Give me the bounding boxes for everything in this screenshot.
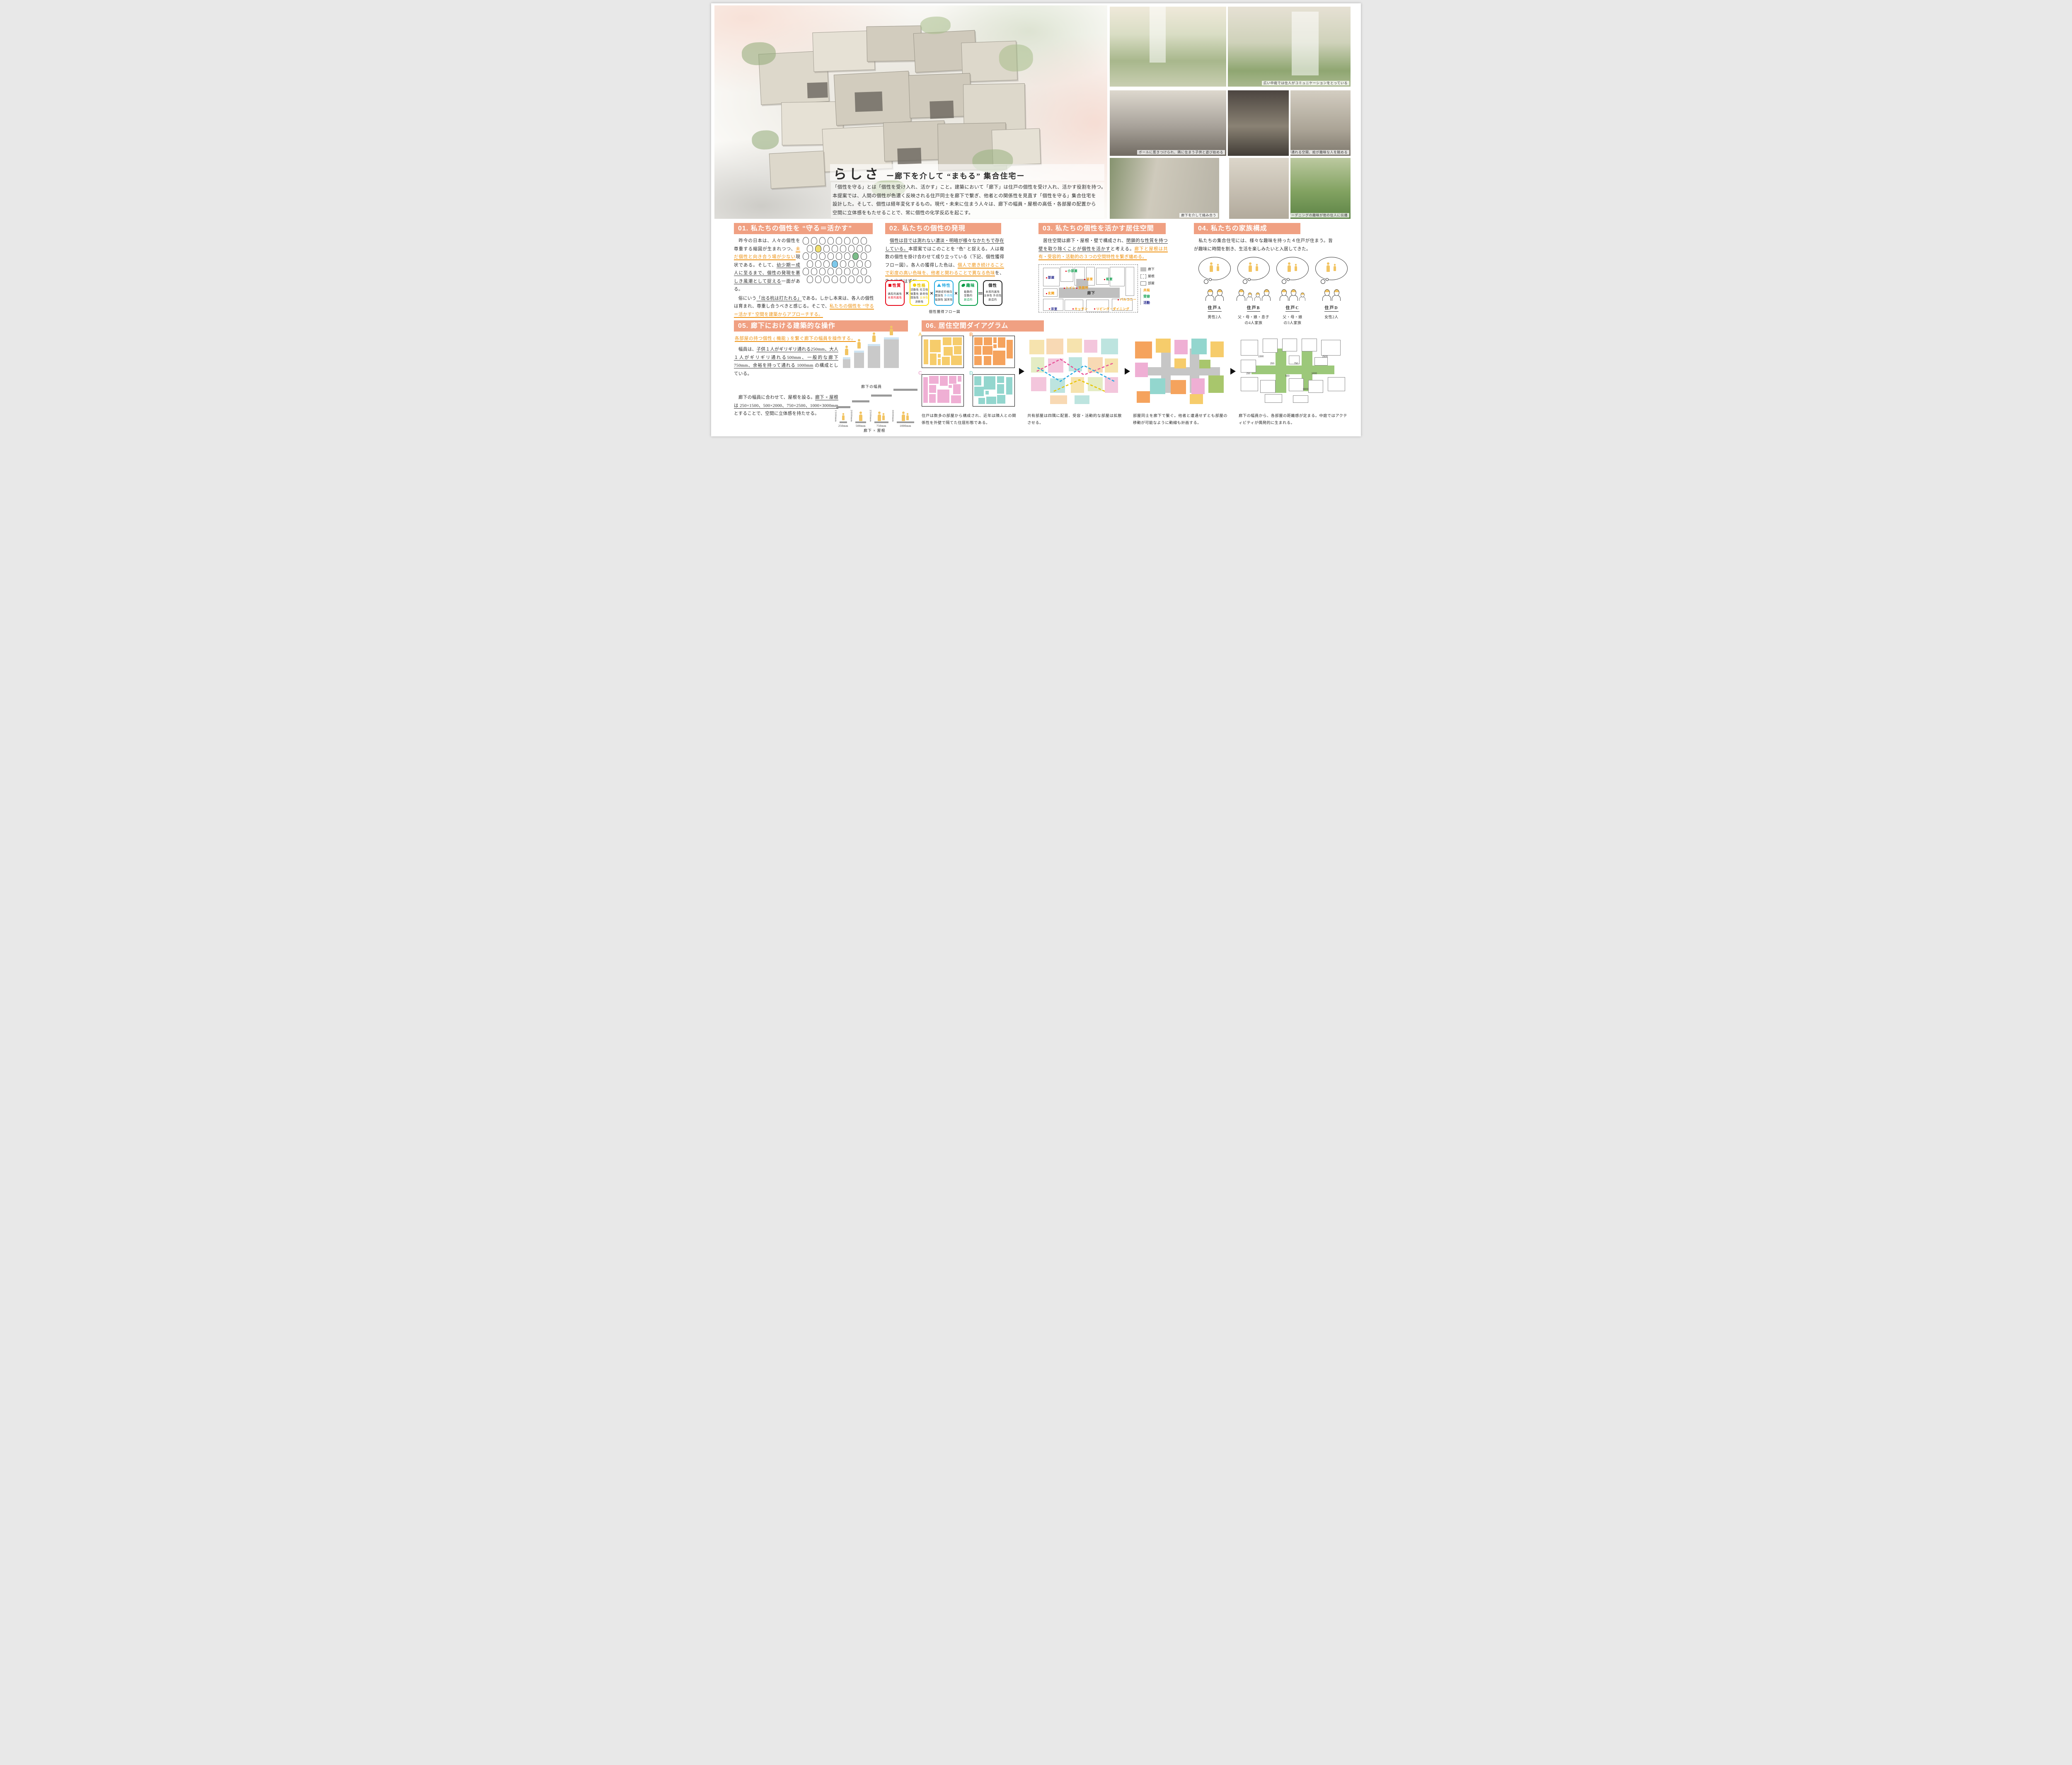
flow-operator: ＝: [978, 280, 983, 306]
diagram-rect: [1321, 340, 1341, 356]
crowd-figure: [811, 252, 817, 260]
crowd-figure: [819, 237, 825, 245]
corridor-width-label: 250mm: [838, 424, 848, 428]
text-run: 居住空間は廊下・屋根・壁で構成され、: [1038, 239, 1126, 243]
figures: [902, 414, 909, 421]
crowd-figure: [861, 237, 867, 245]
section-03-header: 03. 私たちの個性を活かす居住空間: [1038, 223, 1166, 234]
plan-label-リビング・ダイニング: リビング・ダイニング: [1094, 307, 1129, 311]
crowd-figure: [832, 276, 838, 283]
flow-item-line: 決断性: [910, 300, 928, 304]
flow-box-items: 活動性 社交性慎重性 新奇性固執性 主体性決断性: [910, 288, 928, 304]
photo-caption-courtyard: 広い中庭では住人がコミュニケーションをとっている: [1262, 81, 1349, 85]
building-roof-plane: [812, 30, 875, 72]
text-run: と考える。: [1111, 247, 1135, 252]
presentation-board: らしさ ー廊下を介して “まもる” 集合住宅ー 「個性を守る」とは「個性を受け入…: [711, 3, 1361, 436]
family-composition-diagram: 住戸A男性2人住戸B父・母・娘・息子の4人家族住戸C父・母・娘の3人家族住戸D女…: [1195, 257, 1353, 326]
dimension-label: 1500: [1258, 356, 1264, 358]
sq-icon: [888, 284, 891, 287]
photo-caption-corridor-mingle: 廊下を介して絡み合う: [1179, 213, 1218, 218]
flow-item: 外向性: [944, 294, 953, 297]
adult-icon: [1332, 295, 1341, 301]
diagram-rect: [944, 347, 953, 356]
intro-line: 「個性を守る」とは「個性を受け入れ、活かす」こと。建築において「廊下」は住戸の個…: [833, 183, 1103, 192]
flow-operator: ×: [954, 280, 959, 306]
flow-box-性質: 性質偶有的属性本質的属性: [885, 280, 905, 306]
walker-figure: [890, 329, 893, 335]
diagram-rect: [1174, 340, 1188, 354]
crowd-figure: [861, 268, 867, 275]
step-top-face: [843, 357, 850, 359]
crowd-figure: [836, 268, 842, 275]
intro-paragraph: 「個性を守る」とは「個性を受け入れ、活かす」こと。建築において「廊下」は住戸の個…: [831, 182, 1104, 218]
diagram-rect: [1150, 378, 1165, 394]
legend-word-活動: 活動: [1143, 300, 1168, 305]
diagram-rect: [1191, 378, 1205, 394]
dimension-label: 250: [1246, 373, 1250, 375]
text-run: [885, 239, 890, 243]
flow-item: 創造的: [988, 298, 997, 301]
diagram-rect: [924, 339, 928, 365]
roof-bar: [852, 400, 869, 402]
flow-item-line: 創造的: [984, 298, 1002, 302]
flow-box-label: 性質: [892, 282, 901, 288]
crowd-figure: [857, 276, 863, 283]
diagram-rect: [1137, 391, 1150, 403]
diagram-rect: [1199, 360, 1210, 368]
diagram-rect: [1241, 360, 1256, 373]
adult-icon: [1280, 295, 1288, 301]
intro-line: 空間に立体感をもたせることで、常に個性の化学反応を起こす。: [833, 209, 1103, 218]
diagram-rect: [1263, 339, 1278, 353]
diagram-rect: [1135, 341, 1152, 358]
hobby-figure-icon: [1249, 265, 1252, 272]
flow-box-特性: 特性神経症的傾向開放性 外向性協調性 誠実性: [934, 280, 954, 306]
floor-plan-diagram: 部屋小部屋トイレ洗面所浴室和室玄関洋室キッチンリビング・ダイニングバルコニー廊下: [1038, 264, 1138, 312]
crowd-illustration: [803, 237, 874, 285]
corridor-width-bar: [874, 421, 888, 423]
diagram-rect: [937, 390, 949, 403]
diagram-rect: [984, 356, 991, 365]
crowd-figure: [848, 260, 854, 268]
diagram-step-column: 共有部屋は四隅に配置、受容・活動的な部屋は拡散させる。: [1027, 336, 1122, 427]
render-photo-corridor-meet: 廊下を介して絡み合う: [1110, 158, 1219, 219]
section-06-header: 06. 居住空間ダイアグラム: [922, 320, 1044, 332]
section-03-paragraph: 居住空間は廊下・屋根・壁で構成され、閉鎖的な性質を持つ壁を取り除くことが個性を活…: [1038, 237, 1168, 261]
flow-item: 能動的: [964, 291, 972, 293]
diagram-step-caption: 住戸は数多の部屋から構成され、近年は隣人との関係性を外壁で隔てた住居形態である。: [922, 413, 1016, 427]
render-photo-desk-room: [1228, 90, 1289, 156]
plan-label-部屋: 部屋: [1046, 276, 1055, 279]
diagram-rect: [938, 354, 941, 358]
tr-icon: [937, 283, 941, 287]
flow-box-個性: 個性本質的属性主体性 外向性創造的: [983, 280, 1002, 306]
diagram-rect: [1302, 339, 1317, 351]
plan-label-洋室: 洋室: [1049, 307, 1058, 311]
corridor-width-label: 500mm: [856, 424, 866, 428]
crowd-figure: [857, 245, 863, 252]
flow-item-line: 主体性 外向性: [984, 294, 1002, 298]
render-photo-alcove: [1229, 158, 1289, 219]
diagram-rect: [974, 356, 982, 365]
roof-bar: [836, 406, 850, 408]
flow-item-line: 偶有的属性: [888, 292, 902, 296]
hobby-figure-icon: [1295, 266, 1297, 271]
standing-figure: [878, 414, 881, 421]
crowd-figure: [823, 276, 830, 283]
diagram-rect: [938, 359, 941, 365]
diagram-rect: [974, 387, 984, 396]
flow-box-label: 個性: [988, 282, 997, 288]
crowd-figure: [865, 245, 871, 252]
flow-box-title: 性質: [888, 282, 901, 288]
family-unit-description: 父・母・娘・息子の4人家族: [1238, 314, 1269, 326]
section-01-header: 01. 私たちの個性を “守る＝活かす”: [734, 223, 873, 234]
unit-letter: A: [918, 332, 922, 337]
courtyard-void: [807, 82, 828, 98]
crowd-figure: [803, 252, 809, 260]
crowd-figure: [819, 268, 825, 275]
diagram-step-column: 1500250025075050010002503000廊下の幅員から、各部屋の…: [1239, 336, 1347, 427]
roof-bar: [893, 389, 917, 391]
corridor-width-label: 1000mm: [900, 424, 911, 428]
circulation-arrows: [1027, 336, 1122, 407]
family-desc-line: 父・母・娘・息子: [1238, 314, 1269, 320]
adult-icon: [1205, 295, 1214, 301]
flow-box-label: 性格: [917, 282, 926, 288]
diagram-step-caption: 部屋同士を廊下で繋ぐ。他者と遭遇せずとも部屋の移動が可能なように動線も計画する。: [1133, 413, 1227, 427]
plan-label-corridor: 廊下: [1087, 291, 1095, 295]
photo-caption-kids-space: 子供だけが通れる空間、絵が趣味な人を眺める: [1290, 150, 1349, 155]
family-desc-line: 男性2人: [1208, 314, 1222, 320]
flow-box-title: 特性: [937, 282, 951, 288]
family-unit-description: 男性2人: [1208, 314, 1222, 320]
hobby-figure-icon: [1326, 265, 1330, 272]
family-unit-住戸D: 住戸D女性2人: [1312, 257, 1351, 326]
crowd-figure: [828, 252, 834, 260]
diagram-rect: [1006, 377, 1012, 395]
legend-swatch: [1140, 281, 1146, 286]
diagram-step-caption: 共有部屋は四隅に配置、受容・活動的な部屋は拡散させる。: [1027, 413, 1122, 427]
tree-wash: [920, 16, 951, 34]
width-step-3: [868, 344, 880, 368]
plan-label-浴室: 浴室: [1084, 278, 1093, 281]
hobby-figure-icon: [1288, 265, 1291, 272]
flow-box-性格: 性格活動性 社交性慎重性 新奇性固執性 主体性決断性: [910, 280, 929, 306]
hobby-figure-icon: [1256, 266, 1258, 271]
arrow-right-icon: [1125, 368, 1130, 375]
flow-box-title: 性格: [913, 282, 926, 288]
hobby-thought-bubble: [1237, 257, 1270, 280]
flow-item: 神経症的傾向: [935, 291, 952, 293]
diagram-step-caption: 廊下の幅員から、各部屋の距離感が定まる。中庭ではアクティビティが偶発的に生まれる…: [1239, 413, 1347, 427]
diagram-rect: [953, 384, 961, 394]
diagram-rect: [993, 351, 1005, 365]
section-05-header: 05. 廊下における建築的な操作: [734, 320, 908, 332]
flow-item: 開放性: [935, 294, 944, 297]
crowd-figure: [852, 237, 859, 245]
flow-item: 受動的: [964, 294, 972, 297]
width-step-2: [854, 351, 864, 368]
diagram-rect: [929, 385, 936, 393]
plan-label-トイレ: トイレ: [1064, 286, 1076, 290]
circulation-arrow: [1037, 359, 1114, 375]
diagram-rect: [930, 353, 937, 365]
family-unit-name: 住戸B: [1247, 304, 1261, 312]
diagram-rect: [984, 376, 995, 390]
diagram-rect: [1210, 341, 1224, 357]
child-icon: [1254, 297, 1261, 301]
family-unit-name: 住戸C: [1285, 304, 1299, 312]
flow-item-line: 本質的属性: [888, 296, 902, 300]
diagram-panel: [1133, 336, 1227, 407]
flow-item: 主体性: [920, 296, 928, 299]
diagram-rect: [1191, 339, 1206, 354]
page-title: らしさ: [833, 167, 881, 181]
section-01-body: 昨今の日本は、人々の個性を尊重する縮図が生まれつつ、未だ個性と向き合う場が少ない…: [734, 237, 874, 319]
text-run: 昨今の日本は、人々の個性を尊重する縮図が生まれつつ、: [734, 239, 800, 252]
crowd-figure: [840, 260, 846, 268]
building-cluster: [731, 8, 1075, 212]
crowd-figure: [807, 276, 813, 283]
roof-height-label: 2000mm: [850, 410, 853, 422]
plan-label-キッチン: キッチン: [1072, 307, 1088, 311]
section-02-paragraph: 個性は目では測れない濃淡・明暗が様々なかたちで存在している。本提案ではこのことを…: [885, 237, 1004, 286]
step-top-face: [884, 337, 899, 339]
flow-box-items: 偶有的属性本質的属性: [888, 288, 902, 304]
flow-diagram-caption: 個性獲得フロー図: [885, 309, 1004, 314]
child-icon: [1247, 297, 1253, 301]
crowd-figure: [828, 237, 834, 245]
width-step-1: [843, 357, 850, 368]
diagram-rect: [1293, 395, 1308, 402]
flow-item: 本質的属性: [986, 291, 1000, 293]
corridor-roof-diagram: 1500mm250mm2000mm500mm2500mm750mm3000mm1…: [838, 389, 916, 428]
crowd-figure: [832, 260, 838, 268]
hobby-thought-bubble: [1315, 257, 1348, 280]
crowd-figure: [852, 252, 859, 260]
diagram-rect: [1208, 375, 1223, 392]
plan-label-洗面所: 洗面所: [1076, 286, 1088, 290]
diagram-step-column: 部屋同士を廊下で繋ぐ。他者と遭遇せずとも部屋の移動が可能なように動線も計画する。: [1133, 336, 1227, 427]
roof-pair-2: 2000mm500mm: [854, 400, 868, 428]
crowd-figure: [815, 245, 821, 252]
diagram-rect: [974, 337, 983, 345]
legend-swatch: [1140, 274, 1146, 278]
diagram-panel: ABCD: [922, 336, 1016, 407]
dimension-label: 750: [1294, 363, 1298, 365]
flow-item: 偶有的属性: [888, 293, 902, 295]
intro-line: 本提案では、人間の個性が色濃く反映される住戸同士を廊下で繋ぎ、他者との関係性を見…: [833, 192, 1103, 201]
flow-operator: ×: [905, 280, 910, 306]
family-unit-住戸A: 住戸A男性2人: [1195, 257, 1234, 326]
diagram-rect: [1241, 377, 1258, 391]
roof-bar: [871, 395, 892, 397]
dimension-label: 1000: [1312, 373, 1317, 375]
hobby-figure-icon: [1210, 265, 1213, 272]
diagram-rect: [1251, 366, 1334, 374]
diagram-rect: [943, 337, 951, 345]
crowd-figure: [807, 260, 813, 268]
diagram-rect: [993, 337, 997, 343]
building-roof-plane: [769, 151, 826, 189]
flow-item: 主体性 外向性: [984, 294, 1002, 297]
ci-icon: [913, 283, 916, 287]
diagram-rect: [1328, 377, 1345, 391]
family-desc-line: の3人家族: [1283, 320, 1302, 326]
diagram-rect: [1265, 394, 1282, 403]
flow-item-line: 本質的属性: [984, 290, 1002, 294]
child-icon: [1299, 297, 1305, 301]
crowd-figure: [844, 252, 850, 260]
legend-swatch: [1140, 267, 1146, 271]
flow-box-趣味: 趣味能動的受動的創造的: [959, 280, 978, 306]
diagram-rect: [1282, 339, 1297, 351]
plan-label-和室: 和室: [1104, 278, 1113, 281]
crowd-figure: [823, 260, 830, 268]
crowd-figure: [840, 245, 846, 252]
circulation-arrow: [1054, 380, 1105, 392]
adult-icon: [1322, 295, 1331, 301]
crowd-figure: [811, 237, 817, 245]
flow-item-line: 活動性 社交性: [910, 288, 928, 292]
plan-room: [1110, 267, 1124, 287]
rb-icon: [961, 283, 966, 287]
diagram-rect: [1190, 394, 1203, 404]
diagram-rect: [1241, 340, 1258, 356]
unit-box-B: B: [973, 336, 1015, 368]
flow-item: 決断性: [915, 300, 923, 303]
roof-pair-3: 2500mm750mm: [873, 395, 890, 428]
diagram-rect: [997, 384, 1004, 394]
diagram-rect: [984, 337, 992, 345]
flow-item-line: 慎重性 新奇性: [910, 292, 928, 296]
title-block: らしさ ー廊下を介して “まもる” 集合住宅ー: [830, 164, 1104, 181]
text-run: 「出る杭は打たれる」: [757, 296, 802, 301]
flow-item-line: 固執性 主体性: [910, 296, 928, 300]
walker-figure: [872, 335, 876, 342]
text-run: 廊下の幅員に合わせて、屋根を設る。: [734, 395, 815, 400]
section-05-lead: 各部屋の持つ個性 ( 機能 ) を繋ぐ廊下の幅員を操作する。: [735, 335, 856, 341]
legend-space-characters: 共有受容活動: [1140, 288, 1168, 305]
plan-label-バルコニー: バルコニー: [1118, 298, 1136, 301]
hobby-figure-icon: [1217, 266, 1219, 271]
family-unit-name: 住戸D: [1324, 304, 1338, 312]
diagram-rect: [1308, 380, 1324, 393]
flow-item-line: 創造的: [964, 298, 972, 302]
family-unit-住戸B: 住戸B父・母・娘・息子の4人家族: [1234, 257, 1273, 326]
family-unit-description: 女性2人: [1324, 314, 1339, 320]
flow-item: 本質的属性: [888, 296, 902, 299]
crowd-figure: [815, 276, 821, 283]
corridor-width-bar: [897, 421, 914, 423]
tree-wash: [742, 41, 776, 65]
diagram-rect: [940, 376, 948, 386]
family-members: [1205, 287, 1224, 301]
dimension-label: 2500: [1322, 356, 1328, 358]
courtyard-void: [898, 148, 922, 164]
personality-flow-diagram: 性質偶有的属性本質的属性×性格活動性 社交性慎重性 新奇性固執性 主体性決断性×…: [885, 280, 1004, 306]
family-unit-name: 住戸A: [1208, 304, 1221, 312]
diagram-rect: [1171, 380, 1186, 394]
diagram-rect: [993, 344, 997, 348]
diagram-rect: [951, 356, 962, 365]
diagram-rect: [1260, 380, 1276, 393]
diagram-panel: 1500250025075050010002503000: [1239, 336, 1347, 407]
diagram-rect: [930, 340, 941, 352]
diagram-rect: [923, 377, 928, 403]
unit-box-A: A: [922, 336, 964, 368]
flow-item: 創造的: [964, 298, 972, 301]
diagram-rect: [974, 376, 981, 386]
legend-item-部屋: 部屋: [1140, 281, 1168, 286]
legend-item-屋根: 屋根: [1140, 274, 1168, 278]
diagram-rect: [929, 376, 939, 384]
unit-letter: B: [969, 332, 973, 337]
diagram-rect: [1174, 358, 1186, 368]
render-photo-corridor-kids: ボールに惹きつけられ、隣に住まう子供と遊び始める: [1110, 90, 1226, 156]
corridor-width-bar: [855, 421, 866, 423]
diagram-rect: [929, 394, 936, 403]
section-05-paragraph-1: 幅員は、子供１人がギリギリ通れる250mm、大人１人がギリギリ通れる500mm、…: [734, 346, 838, 378]
flow-box-items: 本質的属性主体性 外向性創造的: [984, 288, 1002, 304]
crowd-figure: [811, 268, 817, 275]
crowd-figure: [836, 252, 842, 260]
standing-figure: [902, 414, 905, 421]
render-photo-garden-path: ガーデニングの趣味が他の住人に伝播: [1290, 158, 1351, 219]
flow-item-line: 協調性 誠実性: [935, 298, 953, 302]
hobby-thought-bubble: [1276, 257, 1309, 280]
roof-height-label: 3000mm: [891, 410, 894, 422]
diagram-rect: [954, 346, 961, 354]
crowd-figure: [819, 252, 825, 260]
roof-pair-4: 3000mm1000mm: [895, 389, 916, 428]
section-01-paragraph-2: 俗にいう「出る杭は打たれる」である。しかし本来は、各人の個性は育まれ、尊重し合う…: [734, 295, 874, 319]
dimension-label: 500: [1285, 375, 1290, 378]
diagram-rect: [974, 346, 981, 355]
crowd-figure: [832, 245, 838, 252]
unit-box-C: C: [922, 374, 964, 407]
diagram-rect: [958, 376, 961, 382]
roof-height-label: 2500mm: [869, 410, 872, 422]
flow-box-items: 神経症的傾向開放性 外向性協調性 誠実性: [935, 288, 953, 304]
crowd-figure: [848, 276, 854, 283]
legend-word-共有: 共有: [1143, 288, 1168, 293]
walker-figure: [857, 342, 861, 349]
diagram-rect: [997, 376, 1004, 383]
adult-icon: [1262, 295, 1271, 301]
diagram-rect: [986, 397, 996, 404]
render-photo-courtyard-entry: 広い中庭では住人がコミュニケーションをとっている: [1228, 7, 1351, 87]
crowd-figure: [865, 276, 871, 283]
plan-room: [1096, 268, 1109, 285]
section-02-header: 02. 私たちの個性の発現: [885, 223, 1001, 234]
flow-box-label: 趣味: [966, 282, 975, 288]
diagram-rect: [985, 391, 989, 395]
adult-icon: [1289, 295, 1298, 301]
flow-operator: ×: [929, 280, 934, 306]
courtyard-void: [930, 101, 954, 119]
page-subtitle: ー廊下を介して “まもる” 集合住宅ー: [886, 172, 1025, 181]
dimension-label: 3000: [1303, 388, 1308, 391]
dimension-label: 250: [1270, 363, 1274, 365]
unit-letter: C: [918, 370, 922, 376]
standing-figure: [882, 415, 885, 420]
intro-line: 設計した。そして、個性は経年変化するもの。現代・未来に住まう人々は、廊下の幅員・…: [833, 200, 1103, 209]
flow-box-items: 能動的受動的創造的: [964, 288, 972, 304]
flow-item-line: 能動的: [964, 290, 972, 294]
step-top-face: [854, 351, 864, 353]
